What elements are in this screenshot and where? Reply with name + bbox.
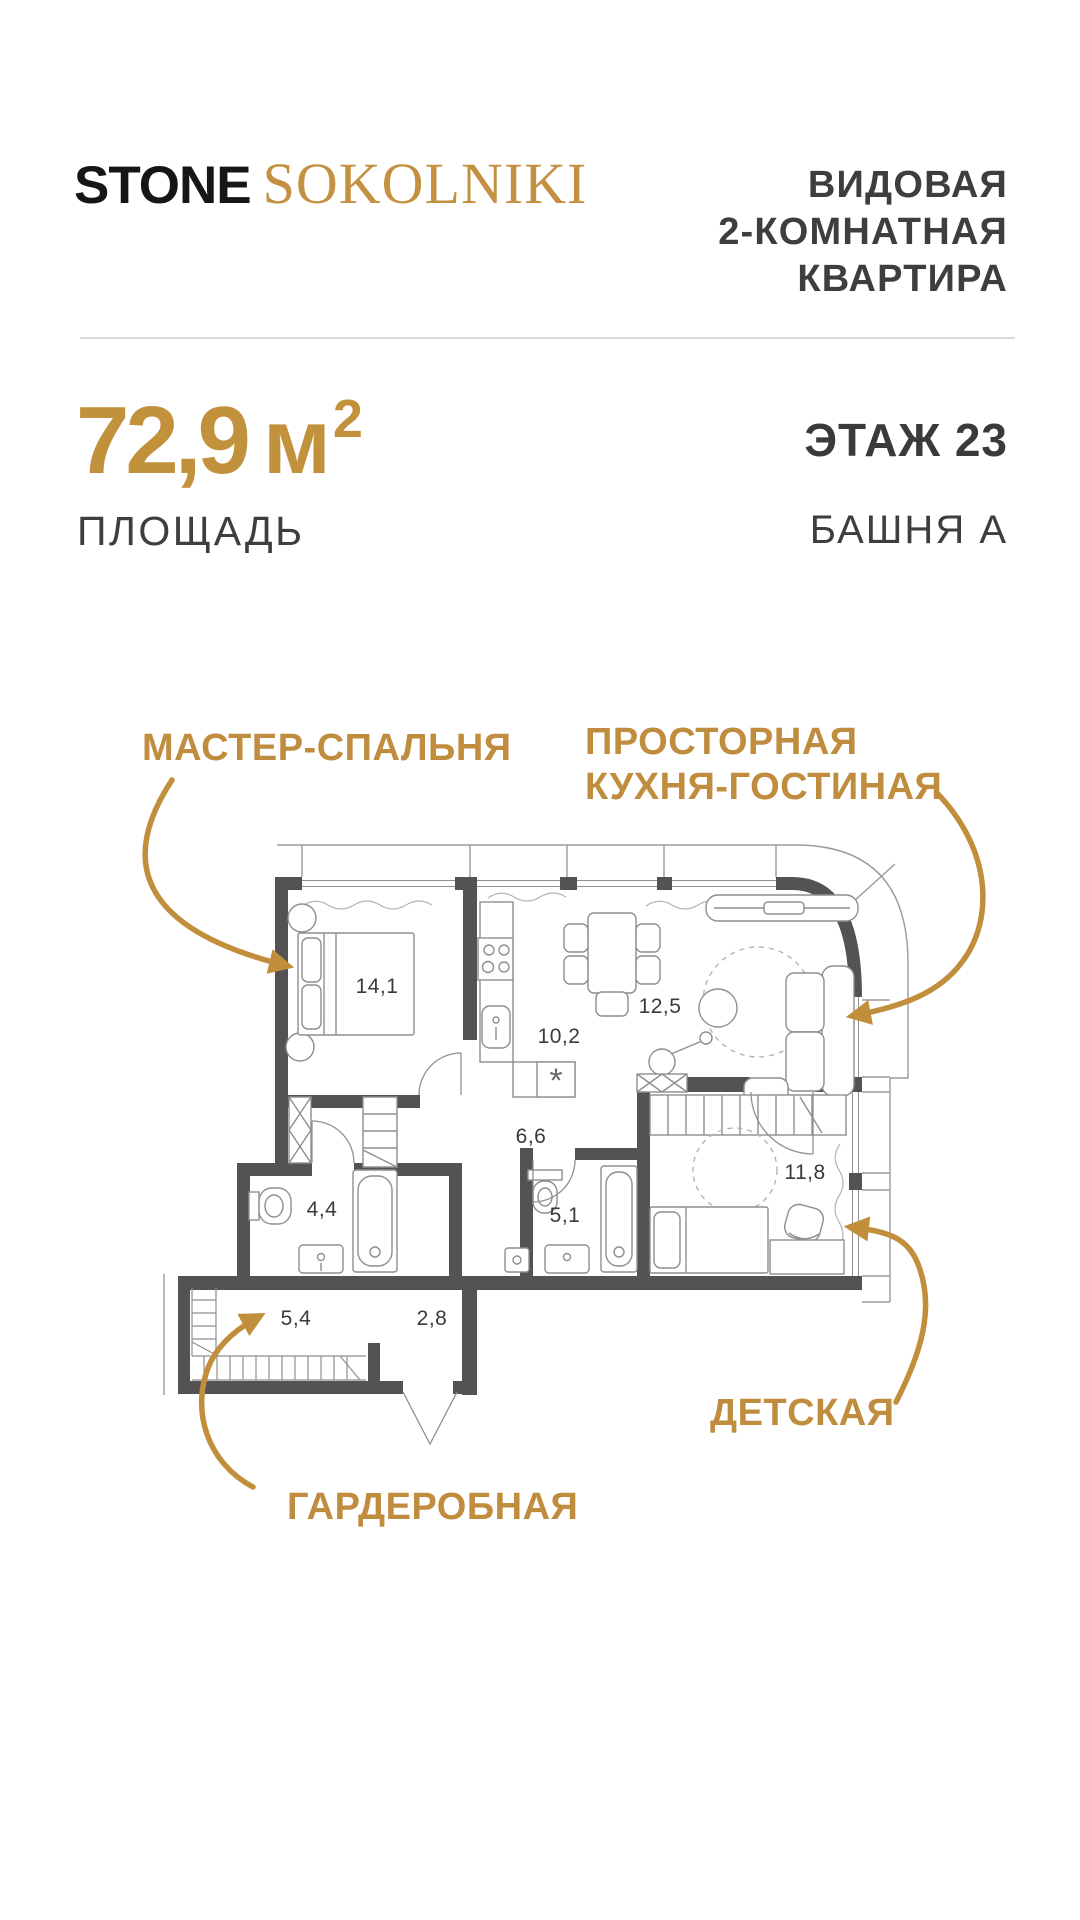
furniture-wardrobe-room	[192, 1288, 366, 1380]
furniture-kids-room	[650, 1095, 846, 1274]
callout-wardrobe-room: ГАРДЕРОБНАЯ	[287, 1486, 578, 1529]
arrow-wardrobe-room	[202, 1316, 260, 1487]
room-area-living-room: 12,5	[639, 995, 682, 1018]
arrow-kids-room	[850, 1227, 926, 1402]
room-area-kids-room: 11,8	[784, 1161, 825, 1184]
room-area-bathroom: 4,4	[307, 1198, 338, 1221]
flyer-page: STONE SOKOLNIKI ВИДОВАЯ 2-КОМНАТНАЯ КВАР…	[0, 0, 1080, 1920]
callout-master-bedroom: МАСТЕР-СПАЛЬНЯ	[142, 727, 512, 770]
furniture-kitchen	[478, 902, 660, 1097]
callout-kitchen-line-2: КУХНЯ-ГОСТИНАЯ	[585, 765, 942, 810]
furniture-bathroom-1	[249, 1170, 397, 1273]
room-area-wardrobe-room: 5,4	[281, 1307, 312, 1330]
appliance-marker: *	[549, 1062, 562, 1100]
callout-kitchen-living: ПРОСТОРНАЯ КУХНЯ-ГОСТИНАЯ	[585, 720, 942, 810]
furniture-master-bedroom	[286, 904, 414, 1167]
room-area-master-bedroom: 14,1	[356, 975, 399, 998]
room-area-hallway: 2,8	[417, 1307, 448, 1330]
arrow-kitchen-living	[852, 793, 983, 1016]
room-area-corridor: 6,6	[516, 1125, 547, 1148]
callout-kitchen-line-1: ПРОСТОРНАЯ	[585, 720, 942, 765]
arrow-master-bedroom	[145, 780, 288, 966]
floor-plan: *	[0, 0, 1080, 1920]
callout-kids-room: ДЕТСКАЯ	[710, 1392, 895, 1435]
room-area-kitchen: 10,2	[538, 1025, 581, 1048]
room-area-bathroom-2: 5,1	[550, 1204, 581, 1227]
